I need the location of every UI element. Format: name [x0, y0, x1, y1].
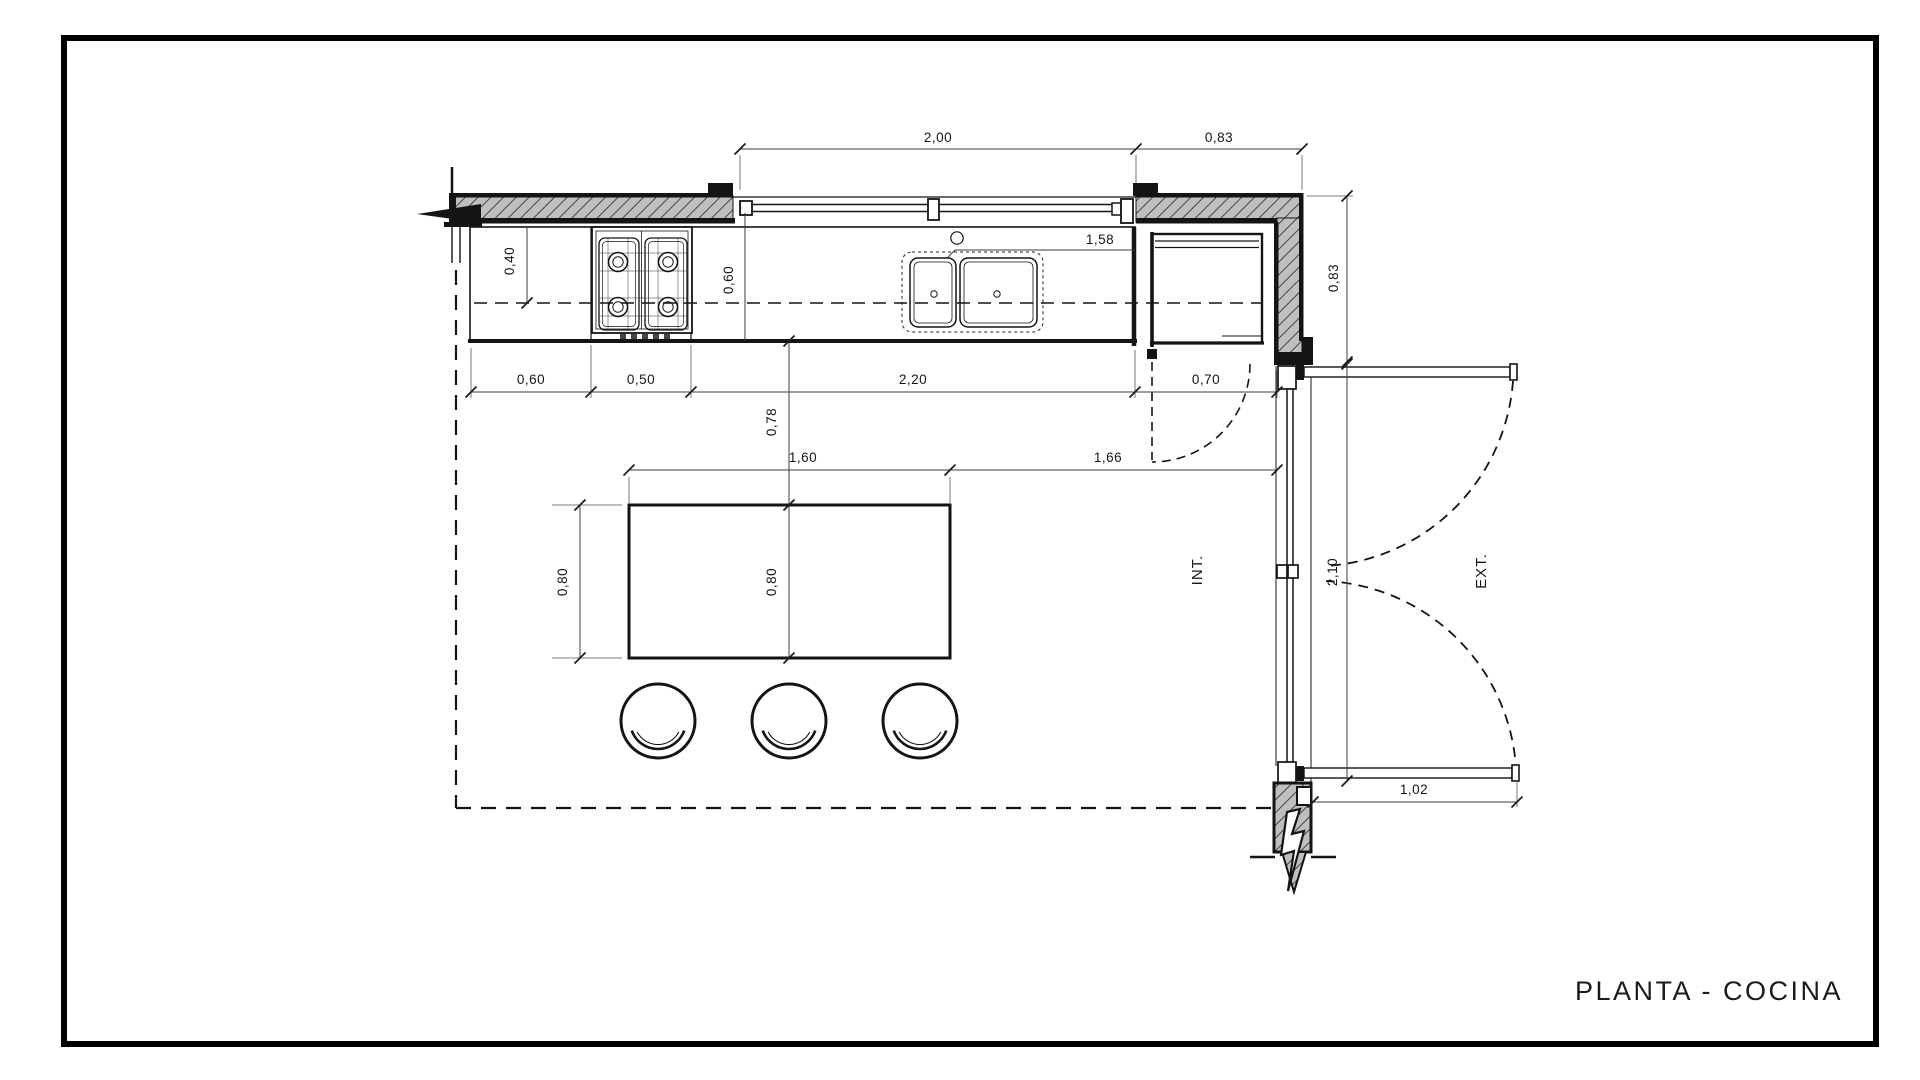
- dim-wall-axis: 0,40: [502, 247, 517, 275]
- dim-window-leaf-label: 1,02: [1400, 782, 1428, 797]
- wall-stub-bottom: [1250, 783, 1336, 892]
- stool-2: [752, 684, 826, 758]
- stove: [592, 227, 692, 339]
- faucet-icon: [951, 232, 963, 244]
- window-top: [733, 197, 1136, 223]
- dim-table-length: 1,60: [789, 450, 817, 465]
- dim-window-height: 2,10: [1325, 359, 1353, 787]
- dim-window-leaf: 1,02: [1308, 782, 1523, 808]
- leaf-swing-arc-top: [1326, 381, 1513, 566]
- dim-corner-top: 0,83: [1205, 130, 1233, 145]
- window-jamb-right-b: [1121, 199, 1133, 223]
- drawing-title: PLANTA - COCINA: [1575, 976, 1843, 1006]
- door-hinge: [1147, 349, 1157, 359]
- dim-counter-depth: 0,60: [721, 266, 736, 294]
- floor-plan-page: 2,00 0,83 0,83 1,58 0,40 0,60 0,60: [0, 0, 1920, 1080]
- sink: [902, 232, 1043, 332]
- dim-cabinet-left: 0,60: [517, 372, 545, 387]
- dim-counter-run: 2,20: [899, 372, 927, 387]
- dim-sink-corner: 1,58: [1086, 232, 1114, 247]
- dim-top-chain: 2,00 0,83: [735, 130, 1308, 190]
- leaf-hinge-bottom: [1296, 766, 1304, 781]
- leaf-hinge-top: [1296, 364, 1304, 380]
- window-jamb-bottom: [1278, 762, 1296, 783]
- window-mullion-mid-a: [1277, 565, 1287, 578]
- zone-label-interior: INT.: [1189, 555, 1206, 586]
- stove-knobs: [620, 334, 670, 339]
- sheet-border: [64, 38, 1876, 1044]
- stools: [621, 684, 957, 758]
- dim-window-top: 2,00: [924, 130, 952, 145]
- dim-table-chain: 1,60 1,66: [624, 450, 1283, 503]
- dim-table-width: 0,80: [552, 500, 622, 664]
- dim-corner-right-label: 0,83: [1326, 264, 1341, 292]
- zone-label-exterior: EXT.: [1473, 553, 1490, 589]
- floor-plan-drawing: 2,00 0,83 0,83 1,58 0,40 0,60 0,60: [0, 0, 1920, 1080]
- dim-door-opening: 0,70: [1192, 372, 1220, 387]
- dim-corner-right: 0,83: [1307, 191, 1353, 368]
- dim-sink-leader: 1,58: [947, 232, 1135, 258]
- dim-counter-to-table: 0,78: [764, 408, 779, 436]
- window-leaf-top: [1304, 367, 1510, 377]
- dim-stove-width: 0,50: [627, 372, 655, 387]
- leaf-swing-arc-bottom: [1326, 581, 1515, 757]
- window-jamb-right-a: [1112, 203, 1121, 215]
- window-leaf-bottom: [1304, 768, 1512, 778]
- window-jamb-top: [1278, 366, 1296, 389]
- door-swing: [1147, 349, 1250, 462]
- dim-table-width-axis: 0,80: [764, 568, 779, 596]
- window-mullion-mid-b: [1288, 565, 1298, 578]
- window-mullion-center: [928, 199, 939, 220]
- dim-table-width-left: 0,80: [555, 568, 570, 596]
- fridge: [1150, 232, 1264, 347]
- dim-table-to-window: 1,66: [1094, 450, 1122, 465]
- stool-3: [883, 684, 957, 758]
- window-jamb-left: [740, 201, 752, 215]
- dim-window-height-label: 2,10: [1325, 558, 1340, 586]
- dim-bottom-chain: 0,60 0,50 2,20 0,70: [466, 345, 1283, 398]
- stool-1: [621, 684, 695, 758]
